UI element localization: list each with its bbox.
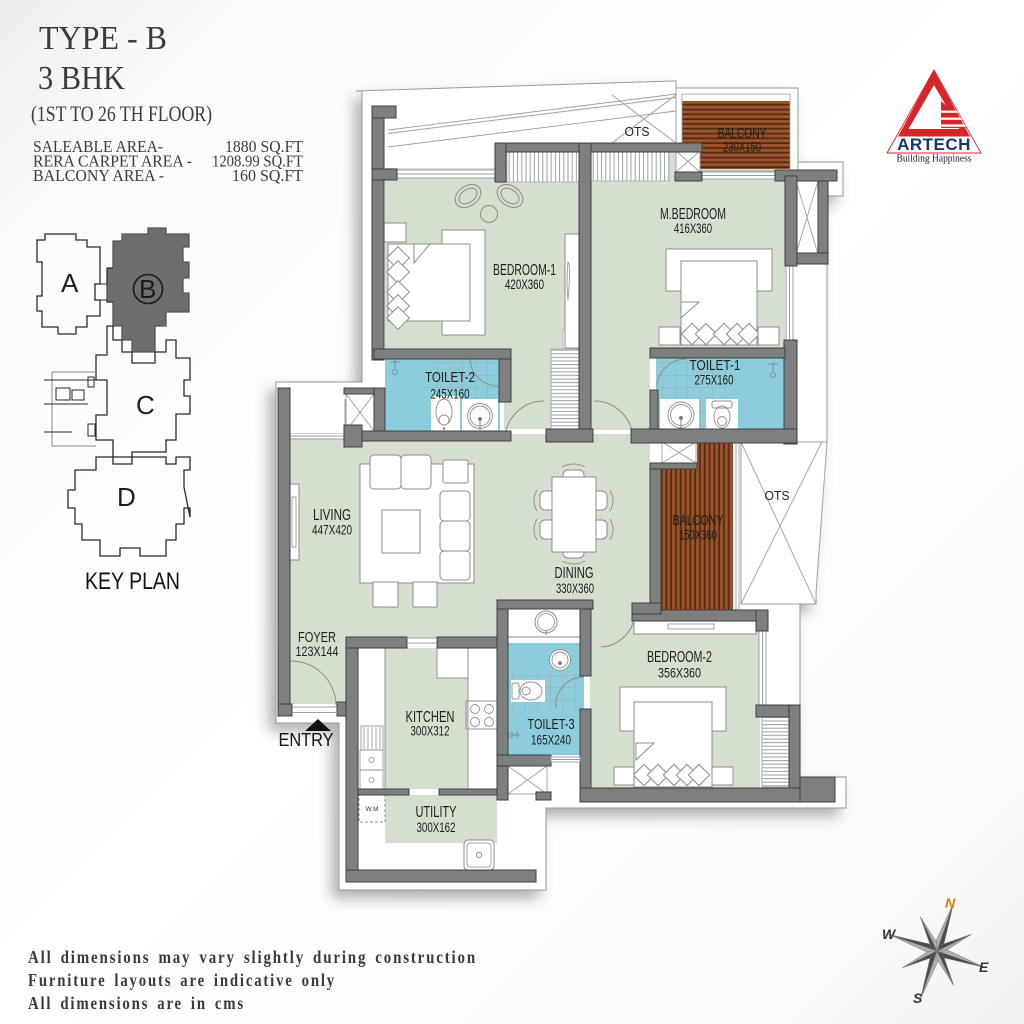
svg-text:BEDROOM-2: BEDROOM-2 bbox=[647, 649, 712, 666]
svg-text:230X150: 230X150 bbox=[723, 140, 761, 155]
svg-text:W.M: W.M bbox=[366, 806, 379, 813]
svg-text:420X360: 420X360 bbox=[505, 277, 544, 292]
svg-text:LIVING: LIVING bbox=[313, 507, 351, 524]
svg-text:S: S bbox=[913, 990, 923, 1006]
svg-text:330X360: 330X360 bbox=[556, 581, 594, 596]
svg-text:ARTECH: ARTECH bbox=[897, 135, 971, 154]
svg-text:KEY PLAN: KEY PLAN bbox=[85, 568, 180, 595]
svg-text:165X240: 165X240 bbox=[531, 733, 571, 748]
svg-text:D: D bbox=[117, 482, 136, 512]
svg-text:275X160: 275X160 bbox=[695, 373, 734, 388]
svg-text:245X160: 245X160 bbox=[431, 387, 470, 402]
svg-text:300X162: 300X162 bbox=[417, 820, 456, 835]
svg-text:300X312: 300X312 bbox=[411, 724, 450, 739]
svg-text:416X360: 416X360 bbox=[674, 221, 712, 236]
svg-text:356X360: 356X360 bbox=[658, 666, 701, 681]
svg-text:(1ST TO 26 TH FLOOR): (1ST TO 26 TH FLOOR) bbox=[31, 101, 212, 126]
svg-text:All dimensions are in cms: All dimensions are in cms bbox=[28, 993, 245, 1013]
svg-text:TYPE - B: TYPE - B bbox=[39, 20, 167, 57]
svg-text:TOILET-3: TOILET-3 bbox=[528, 716, 575, 733]
svg-text:W: W bbox=[882, 926, 897, 942]
svg-text:C: C bbox=[136, 390, 155, 420]
svg-text:447X420: 447X420 bbox=[312, 523, 352, 538]
svg-text:BALCONY: BALCONY bbox=[673, 512, 724, 529]
svg-text:Building Happiness: Building Happiness bbox=[897, 153, 972, 165]
svg-text:ENTRY: ENTRY bbox=[279, 730, 334, 750]
svg-text:Furniture layouts are indicati: Furniture layouts are indicative only bbox=[28, 970, 336, 990]
svg-text:160 SQ.FT: 160 SQ.FT bbox=[232, 166, 303, 185]
svg-text:All dimensions may vary slight: All dimensions may vary slightly during … bbox=[28, 947, 477, 967]
svg-text:E: E bbox=[979, 959, 989, 975]
svg-text:DINING: DINING bbox=[555, 565, 594, 582]
svg-text:150X360: 150X360 bbox=[679, 528, 717, 543]
svg-text:3 BHK: 3 BHK bbox=[38, 60, 125, 97]
svg-text:123X144: 123X144 bbox=[296, 644, 339, 659]
svg-text:B: B bbox=[139, 274, 156, 304]
svg-text:BALCONY AREA -: BALCONY AREA - bbox=[33, 166, 164, 185]
svg-text:N: N bbox=[945, 895, 956, 911]
svg-text:OTS: OTS bbox=[625, 124, 650, 139]
svg-text:TOILET-1: TOILET-1 bbox=[690, 357, 741, 374]
svg-text:TOILET-2: TOILET-2 bbox=[425, 369, 475, 386]
svg-text:OTS: OTS bbox=[765, 488, 790, 503]
svg-text:A: A bbox=[61, 268, 79, 298]
svg-text:UTILITY: UTILITY bbox=[416, 804, 457, 821]
